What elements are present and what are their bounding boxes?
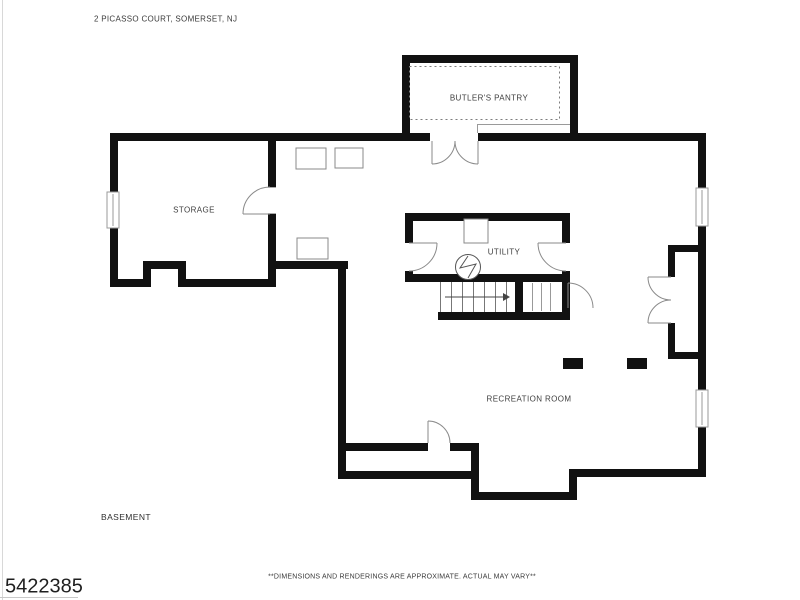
- mls-number: 5422385: [5, 576, 83, 599]
- floor-label: BASEMENT: [101, 512, 151, 522]
- wall-top-left: [110, 133, 408, 141]
- door-utility-right: [538, 243, 566, 271]
- wall-bump-left: [471, 443, 479, 500]
- wall-bump-bottom: [471, 492, 577, 500]
- floor-plan-drawing: [0, 0, 800, 600]
- wall-corridor-bottom: [338, 471, 479, 479]
- walls: [110, 55, 706, 500]
- doors: [243, 141, 671, 443]
- door-understair-closet: [568, 283, 593, 308]
- wall-utility-right-upper: [562, 213, 570, 243]
- wall-utility-bottom: [405, 274, 570, 282]
- floor-plan-page: 2 PICASSO COURT, SOMERSET, NJ BUTLER'S P…: [0, 0, 800, 600]
- fixture-box: [297, 238, 328, 259]
- door-swing-arc: [568, 283, 593, 308]
- wall-niche-bottom: [668, 352, 698, 359]
- door-corridor: [428, 421, 450, 443]
- address-header: 2 PICASSO COURT, SOMERSET, NJ: [94, 15, 237, 24]
- door-swing-arc: [648, 300, 671, 323]
- wall-right-upper: [698, 141, 706, 190]
- pantry-counter-line: [478, 125, 571, 134]
- wall-top-right: [578, 133, 706, 141]
- wall-pantry-bottom-left: [408, 133, 430, 141]
- room-label-recreation-room: RECREATION ROOM: [487, 395, 572, 404]
- wall-stair-bottom: [438, 312, 570, 320]
- disclaimer-text: **DIMENSIONS AND RENDERINGS ARE APPROXIM…: [268, 574, 536, 581]
- door-pantry-double: [432, 141, 478, 164]
- door-niche-double: [648, 277, 671, 323]
- door-swing-arc: [648, 277, 671, 300]
- room-label-utility: UTILITY: [488, 248, 521, 257]
- room-label-storage: STORAGE: [173, 206, 215, 215]
- door-swing-arc: [428, 421, 450, 443]
- wall-storage-bottom-left: [110, 279, 143, 287]
- fixtures: [296, 148, 363, 259]
- staircase: [441, 282, 551, 312]
- wall-pantry-left: [402, 55, 410, 141]
- wall-pantry-top: [402, 55, 578, 63]
- support-column: [627, 358, 647, 369]
- wall-niche-left-upper: [668, 245, 675, 277]
- door-swing-arc: [538, 243, 566, 271]
- door-swing-arc: [409, 243, 437, 271]
- support-column: [563, 358, 583, 369]
- wall-storage-right-upper: [268, 141, 276, 187]
- wall-corridor-top-left: [346, 443, 428, 451]
- door-swing-arc: [455, 141, 478, 164]
- columns: [563, 358, 647, 369]
- wall-west-lower: [338, 261, 346, 479]
- wall-utility-left-upper: [405, 213, 413, 243]
- wall-left-lower: [110, 228, 118, 287]
- wall-mid-horizontal: [268, 261, 348, 269]
- wall-pantry-bottom-right: [478, 133, 570, 141]
- furnace-symbol: [464, 219, 488, 243]
- wall-right-mid: [698, 226, 706, 390]
- door-swing-arc: [432, 141, 455, 164]
- utility-equipment: [456, 219, 489, 280]
- wall-pantry-right: [570, 55, 578, 141]
- fixture-box: [335, 148, 363, 168]
- wall-storage-bottom-right: [186, 279, 276, 287]
- water-heater-symbol: [456, 255, 481, 280]
- door-storage: [243, 187, 276, 214]
- wall-left-upper: [110, 141, 118, 192]
- room-label-butlers-pantry: BUTLER'S PANTRY: [450, 94, 528, 103]
- wall-notch-right: [178, 261, 186, 287]
- wall-bottom-right: [569, 469, 706, 477]
- wall-storage-right-lower: [268, 214, 276, 287]
- door-swing-arc: [243, 187, 270, 214]
- door-utility-left: [409, 243, 437, 271]
- fixture-box: [296, 148, 326, 169]
